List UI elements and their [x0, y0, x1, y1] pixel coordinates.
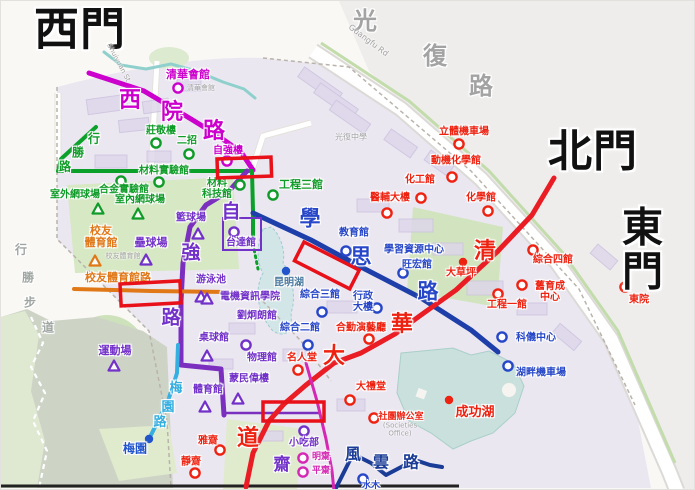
- campus-map: route-xiyuan-roadroute-xingsheng-roadrou…: [0, 0, 695, 490]
- highlight-rect: [263, 402, 324, 421]
- highlight-rect: [217, 157, 272, 178]
- highlight-rect: [294, 242, 359, 289]
- highlights-layer: [1, 1, 695, 490]
- highlight-rect: [120, 281, 181, 306]
